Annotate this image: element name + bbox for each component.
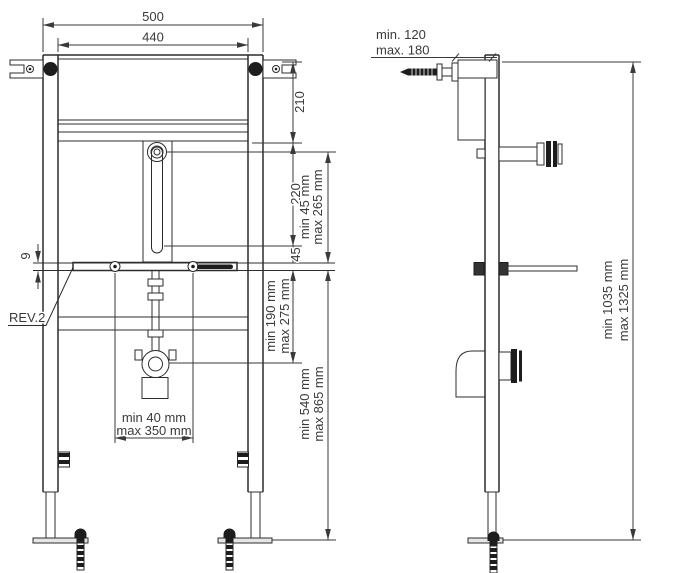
wall-anchor-assembly xyxy=(400,60,497,140)
side-view xyxy=(400,55,577,573)
top-crossmember xyxy=(58,59,248,141)
drain-clamp xyxy=(142,351,169,378)
drain-socket xyxy=(499,349,522,383)
basin-stud xyxy=(474,263,577,276)
bar-slot xyxy=(197,265,233,270)
dim-overall-width: 500 xyxy=(142,9,164,24)
floor-anchor-left xyxy=(75,529,87,571)
dim-frame-height-max: max 1325 mm xyxy=(616,259,631,341)
dim-top-offset: 210 xyxy=(292,91,307,113)
dim-tap-height-max: max 265 mm xyxy=(310,169,325,244)
dim-wall-distance-max: max. 180 xyxy=(376,43,429,58)
wall-bracket-right xyxy=(249,60,297,78)
wall-bracket-left xyxy=(10,60,58,78)
floor-anchor-right xyxy=(224,529,236,571)
drain-elbow xyxy=(456,351,485,397)
dim-drain-height-min: min 190 mm xyxy=(263,280,278,352)
drain-assembly xyxy=(135,270,176,399)
leg-clamp-right xyxy=(238,452,249,467)
dim-bolt-spacing-max: max 350 mm xyxy=(116,423,191,438)
dim-bar-floor-max: max 865 mm xyxy=(311,366,326,441)
dim-bar-offset: 45 xyxy=(288,247,303,261)
dimensions-side: min. 120 max. 180 min 1035 mm max 1325 m… xyxy=(371,27,641,540)
mounting-bar xyxy=(73,262,237,272)
tap-slot xyxy=(152,147,163,253)
mounting-bar-lines xyxy=(33,263,335,271)
supply-fitting xyxy=(477,141,562,167)
dim-bar-thickness: 9 xyxy=(18,252,33,259)
technical-drawing: 500 440 210 220 45 min 45 mm max 265 mm … xyxy=(0,0,675,573)
floor-anchor-side xyxy=(488,532,500,573)
dim-inner-width: 440 xyxy=(142,30,164,45)
bracket-bolt-icon xyxy=(44,62,58,76)
lower-crossmember xyxy=(58,317,248,330)
leg-clamp-left xyxy=(59,452,70,467)
revision-label: REV.2 xyxy=(9,310,45,325)
dim-bar-floor-min: min 540 mm xyxy=(297,368,312,440)
tap-plate xyxy=(143,141,172,262)
side-rail xyxy=(485,55,499,492)
dim-frame-height-min: min 1035 mm xyxy=(600,261,615,340)
bracket-bolt-icon xyxy=(249,62,263,76)
dim-drain-height-max: max 275 mm xyxy=(277,278,292,353)
drawing-canvas: 500 440 210 220 45 min 45 mm max 265 mm … xyxy=(0,0,675,573)
dim-wall-distance-min: min. 120 xyxy=(376,27,426,42)
